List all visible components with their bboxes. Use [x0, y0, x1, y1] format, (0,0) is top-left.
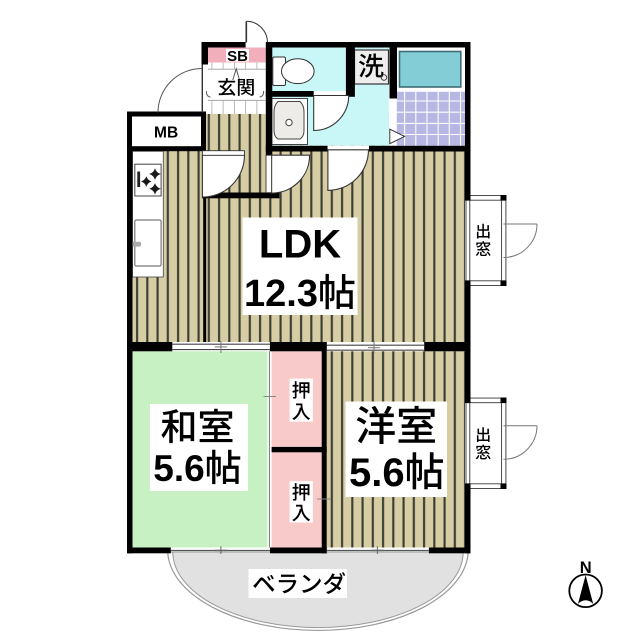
svg-text:SB: SB — [227, 48, 248, 65]
svg-text:LDK: LDK — [259, 223, 341, 267]
svg-text:MB: MB — [154, 125, 178, 142]
svg-text:5.6: 5.6 — [349, 451, 405, 495]
svg-text:12.3: 12.3 — [244, 273, 318, 315]
svg-text:5.6: 5.6 — [153, 448, 204, 489]
